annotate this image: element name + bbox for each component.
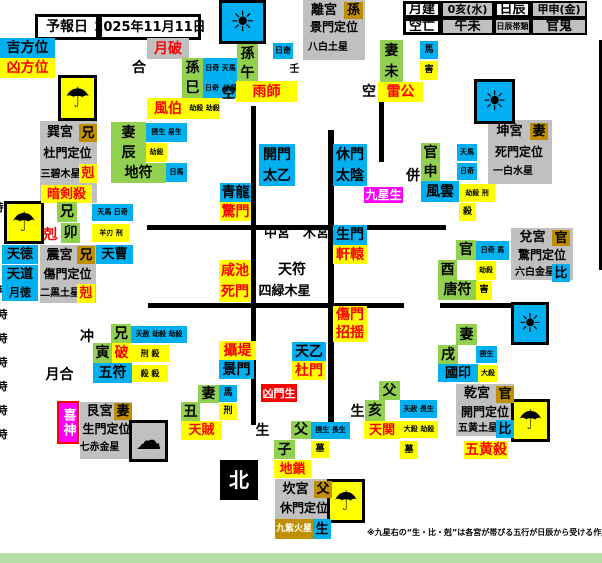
- shoumon-label: 傷門: [333, 306, 367, 324]
- hei-label: 併: [405, 167, 421, 184]
- rikyuu-gate: 景門定位: [304, 19, 364, 35]
- bottom-bar: [0, 553, 602, 563]
- uma-branch: 午: [237, 63, 258, 82]
- gonkyuu-gate: 生門定位: [81, 421, 132, 437]
- tori-branch: 酉: [438, 260, 457, 280]
- ankensatsu-label: 暗剣殺: [41, 185, 92, 203]
- tsuma-ushi-relation: 妻: [198, 385, 219, 403]
- hitsuji-anno-1: 馬: [420, 41, 438, 59]
- fuuhaku-label: 風伯: [147, 98, 189, 119]
- shinkyuu-label: 震宮: [41, 247, 78, 263]
- gettoku-label: 月徳: [2, 284, 38, 301]
- inu-anno-2: 大殺: [478, 365, 498, 382]
- kan-saru-relation: 官: [421, 143, 440, 162]
- chisa-label: 地鎖: [274, 460, 311, 478]
- saru-anno-2: 日奇: [457, 163, 477, 180]
- taiotsu-label: 太乙: [259, 165, 295, 186]
- kankyuu-relation: 父: [314, 481, 332, 498]
- kyou-u-relation: 兄: [57, 202, 77, 222]
- dakyuu-relation: 官: [552, 230, 570, 246]
- settei-label: 攝堤: [219, 341, 256, 360]
- raikou-label: 雷公: [378, 82, 423, 102]
- fuuun-label: 風雲: [421, 181, 459, 202]
- shinkyuu-koku: 剋: [77, 284, 95, 303]
- shinkyuu-relation: 兄: [77, 246, 95, 264]
- mokkyuu-label: 木宮: [299, 226, 333, 241]
- seiryuu-label: 青龍: [220, 183, 251, 202]
- kankyuu-gate: 休門定位: [276, 500, 332, 516]
- sonkyuu-star: 三碧木星: [41, 168, 80, 181]
- kokuin-label: 國印: [438, 364, 478, 382]
- ne-anno-2: 墓: [311, 441, 329, 458]
- sei-label-nw: 生: [350, 404, 365, 420]
- fuuhaku-anno: 劫殺 劫殺: [189, 98, 220, 119]
- tsukigou-label: 月合: [43, 366, 76, 383]
- sonkyuu-relation: 兄: [79, 124, 97, 142]
- seimon-label: 生門: [333, 225, 367, 245]
- chuuguu-label: 中宮: [258, 226, 296, 241]
- tori-anno-1: 日奇 馬: [476, 241, 509, 260]
- kyoumonsei-label: 凶門生: [261, 384, 297, 402]
- kanchi-label: 咸池: [219, 260, 251, 281]
- u-anno-1: 天馬 日奇: [92, 204, 133, 221]
- i-branch: 亥: [365, 400, 385, 421]
- mi-anno-1: 日奇: [203, 78, 221, 98]
- rikyuu-label: 離宮: [304, 2, 344, 18]
- gonkyuu-label: 艮宮: [81, 404, 118, 419]
- ne-branch: 子: [274, 440, 295, 459]
- ushi2-branch: 丑: [181, 402, 200, 421]
- konkyuu-relation: 妻: [530, 123, 548, 140]
- kishin-label: 喜神: [57, 401, 79, 444]
- ji-col-5: 時: [0, 379, 8, 393]
- ji-col-7: 時: [0, 427, 8, 441]
- forecast-date: 2025年11月11日: [99, 14, 201, 40]
- tensou-label: 天曹: [96, 245, 133, 264]
- umbrella-icon-se: ☂: [58, 75, 97, 121]
- tenpu-label: 天符: [275, 262, 309, 278]
- goousatsu-label: 五黄殺: [464, 441, 508, 459]
- ne-anno-1: 摂生 長生: [311, 422, 350, 439]
- grid-vline-raikou: [379, 100, 384, 162]
- konkyuu-star: 一白水星: [489, 165, 537, 178]
- info-kubou-value: 午未: [441, 18, 494, 35]
- sonkyuu-gate: 杜門定位: [41, 145, 94, 161]
- inu-branch: 戌: [438, 345, 458, 365]
- tatsu-branch: 辰: [111, 143, 146, 163]
- kenkyuu-gate: 開門定位: [457, 404, 513, 420]
- koku-label-e: 剋: [41, 225, 60, 244]
- kenkyuu-star: 五黄土星: [457, 422, 499, 435]
- tori-anno-3: 害: [476, 281, 492, 300]
- kenkyuu-hi: 比: [496, 420, 514, 438]
- ushi2-anno-1: 馬: [219, 385, 237, 402]
- chichi-i-relation: 父: [379, 381, 400, 400]
- inu-anno-1: 摂生: [476, 346, 497, 363]
- kan-tori-relation: 官: [456, 240, 476, 260]
- saru-branch: 申: [421, 162, 440, 181]
- tsuma-tatsu-relation: 妻: [111, 122, 146, 143]
- north-marker: 北: [220, 460, 258, 500]
- tenkan-label: 天関: [364, 421, 400, 439]
- kuu-label-sw: 空: [361, 83, 377, 100]
- info-taierui-value: 官鬼: [531, 18, 587, 35]
- uma-anno-2: 壬: [287, 62, 302, 78]
- kuu-label-south: 空: [221, 85, 236, 102]
- legend-good: 吉方位: [0, 38, 55, 58]
- kenen-label: 軒轅: [333, 245, 367, 264]
- tentoku-label: 天徳: [2, 245, 38, 264]
- sei-label-n: 生: [255, 423, 270, 439]
- hitsuji-anno-2: 害: [420, 61, 438, 80]
- umbrella-icon-north: ☂: [327, 479, 365, 523]
- i-anno-1: 天赦 長生: [400, 400, 437, 418]
- u-anno-2: 羊刃 刑: [92, 224, 130, 242]
- umbrella-icon-nw: ☂: [511, 399, 550, 442]
- legend-bad: 凶方位: [0, 58, 55, 78]
- gonkyuu-relation: 妻: [114, 403, 132, 420]
- u-branch: 卯: [61, 223, 80, 243]
- saru-anno-4: 殺: [459, 203, 476, 221]
- konkyuu-gate: 死門定位: [489, 143, 549, 160]
- mi-branch: 巳: [182, 78, 203, 98]
- kenkyuu-relation: 官: [496, 386, 514, 403]
- ushi-rain-label: 雨師: [236, 81, 297, 102]
- keimon-label: 景門: [219, 360, 254, 379]
- tomon-label: 杜門: [292, 361, 326, 380]
- saru-anno-1: 天馬: [457, 144, 477, 161]
- shinkyuu-star: 二黒土星: [41, 287, 79, 300]
- dakyuu-gate: 驚門定位: [512, 247, 572, 263]
- toufu-label: 唐符: [438, 280, 477, 300]
- rikyuu-star: 八白土星: [304, 41, 352, 54]
- info-kubou-label: 空亡: [403, 18, 441, 35]
- gofu-label: 五符: [93, 363, 132, 383]
- gou-label: 合: [130, 58, 148, 77]
- qimen-direction-board: 時時時時時時時時予報日2025年11月11日吉方位凶方位月建0亥(水)日辰甲申(…: [0, 0, 602, 563]
- ji-col-6: 時: [0, 403, 8, 417]
- info-nisshin-label: 日辰: [494, 1, 531, 18]
- info-taierui-label: 日辰帯類: [494, 18, 531, 35]
- kenkyuu-label: 乾宮: [457, 386, 497, 401]
- uma-anno-1: 日奇: [273, 43, 293, 59]
- dakyuu-hi: 比: [552, 264, 570, 282]
- shouyou-label: 招揺: [333, 324, 367, 342]
- kaimon-label: 開門: [259, 144, 295, 165]
- forecast-label: 予報日: [35, 14, 99, 40]
- tora-anno-1: 天赦 劫殺 劫殺: [131, 326, 187, 343]
- tatsu-anno-2: 劫殺: [146, 143, 167, 162]
- tora-anno-2: 刑 殺: [131, 345, 169, 362]
- kyoumon-label: 驚門: [220, 202, 251, 221]
- saru-anno-3: 劫殺 刑: [459, 184, 495, 202]
- dakyuu-label: 兌宮: [512, 230, 553, 245]
- tora-anno-3: 殺 殺: [132, 365, 168, 382]
- chifu-label: 地符: [111, 163, 166, 183]
- ha-label: 破: [112, 343, 131, 363]
- hitsuji-branch: 未: [380, 62, 403, 82]
- info-getsuken-label: 月建: [403, 1, 441, 18]
- tori-anno-2: 劫殺: [476, 261, 496, 280]
- sonkyuu-koku: 剋: [79, 164, 97, 183]
- son-uma-relation: 孫: [237, 44, 258, 63]
- umbrella-icon-east: ☂: [4, 201, 44, 244]
- ji-col-2: 時: [0, 307, 8, 321]
- kankyuu-star: 九紫火星: [275, 519, 313, 539]
- ji-col-4: 時: [0, 355, 8, 369]
- tatsu-anno-1: 摂生 易生: [146, 123, 187, 142]
- cloud-icon-ne: ☁: [129, 420, 168, 462]
- kyou-tora-relation: 兄: [111, 324, 131, 343]
- kyuumon-label: 休門: [333, 144, 367, 165]
- tsuma-hitsuji-relation: 妻: [380, 40, 403, 62]
- tsuma-inu-relation: 妻: [456, 324, 477, 345]
- shinkyuu-gate: 傷門定位: [41, 266, 94, 282]
- grid-hline-bottom-right: [440, 303, 511, 308]
- rikyuu-relation: 孫: [344, 2, 363, 19]
- tenotsu-label: 天乙: [292, 342, 326, 361]
- chichi-ne-relation: 父: [291, 421, 311, 439]
- i-anno-2: 大殺 劫殺: [400, 421, 438, 438]
- tendou-label: 天道: [2, 265, 38, 284]
- konkyuu-label: 坤宮: [489, 123, 530, 139]
- ji-col-3: 時: [0, 331, 8, 345]
- weather-sun-icon-west: ☀: [511, 302, 549, 345]
- sonkyuu-label: 巽宮: [41, 124, 79, 141]
- ushi2-anno-2: 刑: [219, 403, 237, 420]
- kyuuseisei-label: 九星生: [364, 187, 403, 203]
- weather-sun-icon-top: ☀: [219, 0, 266, 44]
- info-getsuken-value: 0亥(水): [441, 1, 494, 18]
- kankyuu-label: 坎宮: [276, 481, 315, 497]
- son-mi-relation: 孫: [182, 58, 203, 78]
- getsuha-label: 月破: [147, 38, 189, 59]
- grid-hline-top: [147, 225, 446, 230]
- shimon-label: 死門: [219, 281, 251, 302]
- footnote: ※九星右の“生・比・剋”は各宮が帯びる五行が日辰から受ける作用: [367, 526, 602, 540]
- tenzoku-label: 天賊: [181, 421, 222, 440]
- son-mi-anno: 日奇 天馬: [203, 58, 238, 78]
- weather-sun-icon-sw: ☀: [474, 79, 515, 124]
- info-nisshin-value: 甲申(金): [531, 1, 587, 18]
- kankyuu-sei: 生: [313, 519, 331, 539]
- tora-branch: 寅: [93, 343, 112, 363]
- tatsu-anno-3: 日馬: [166, 163, 187, 182]
- i-anno-3: 墓: [400, 441, 418, 459]
- gonkyuu-star: 七赤金星: [80, 441, 119, 454]
- taion-label: 太陰: [333, 165, 367, 186]
- shiryoku-label: 四緑木星: [257, 283, 312, 299]
